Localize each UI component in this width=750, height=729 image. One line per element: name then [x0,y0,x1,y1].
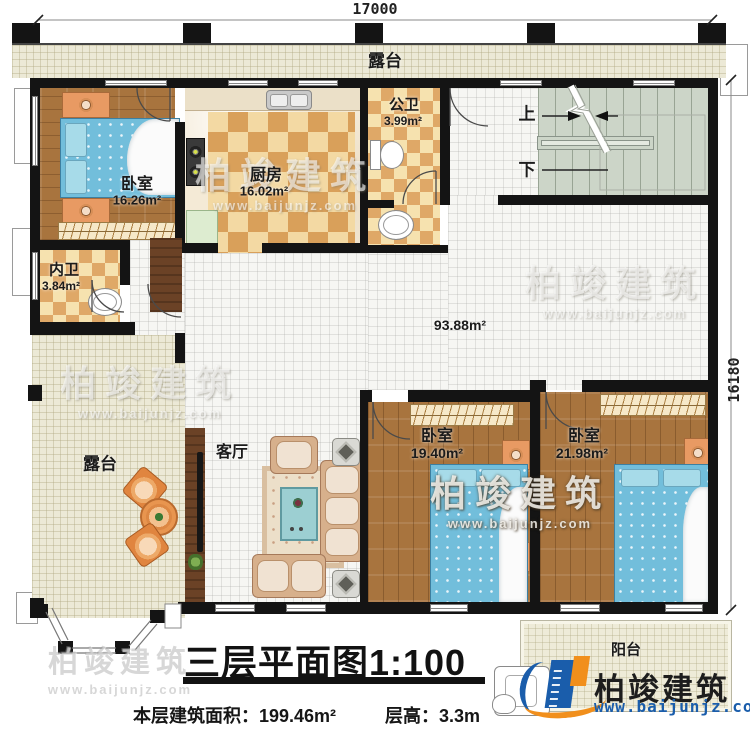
wall [582,380,712,392]
sofa-cushion [291,560,323,592]
column [28,385,42,401]
bed [430,464,528,604]
window [215,604,255,612]
hall-floor [448,195,708,390]
title-underline [183,677,485,684]
table-decor [299,527,303,531]
room-area-bedroom-right: 21.98m² [556,445,608,461]
window [560,604,600,612]
wash-basin [378,210,414,240]
wall [440,88,450,205]
window [228,80,268,86]
sofa-cushion [325,497,359,525]
room-label-inner-bath: 内卫 [49,259,79,280]
kitchen-sink [266,90,312,110]
balcony-chair [492,694,516,714]
room-label-bedroom-left: 卧室 [421,422,453,446]
sofa-cushion [325,528,359,556]
wall [360,245,448,253]
floor-area-text: 本层建筑面积：199.46m² [133,702,336,728]
bed-pillow [663,469,701,487]
right-dimension-label: 16180 [725,357,743,402]
brand-url: www.baijunjz.com [594,697,750,716]
room-area-bedroom-tl: 16.26m² [113,193,161,208]
wash-basin [88,288,122,316]
stove [186,138,205,186]
wall [30,598,44,612]
bed-pillow [437,469,477,487]
column [527,23,555,43]
wall [185,243,218,253]
watermark-text: 柏竣建筑 [48,648,192,678]
bed-blanket [499,487,527,603]
window [105,80,167,86]
room-label-kitchen: 厨房 [250,161,282,185]
bed-pillow [481,469,521,487]
column [355,23,383,43]
stair-handrail [537,136,654,150]
room-label-living: 客厅 [216,438,248,462]
armchair [270,436,318,474]
wall [30,240,130,250]
bed [614,464,710,604]
room-label-bedroom-tl: 卧室 [121,170,153,194]
side-table [332,438,360,466]
terrace-left-floor [32,335,185,618]
wall [360,390,368,612]
hall-area-label: 93.88m² [434,317,486,333]
wall [175,122,185,253]
nightstand [62,198,110,224]
exterior-ledge [12,228,32,296]
table-decor [290,527,294,531]
window [32,252,38,300]
room-label-terrace-left: 露台 [83,450,117,475]
window [665,604,703,612]
wall [175,333,185,363]
wall [360,88,368,253]
toilet-bowl [380,141,404,169]
side-table [332,570,360,598]
wall [708,78,718,612]
floor-height-text: 层高：3.3m [385,702,480,728]
wall [262,243,368,253]
room-label-terrace-top: 露台 [368,47,402,72]
window [286,604,326,612]
floor-plan-canvas: 柏竣建筑 www.baijunjz.com 柏竣建筑 www.baijunjz.… [0,0,750,729]
wall [530,380,540,612]
coffee-table [280,487,318,541]
sofa-cushion [276,441,312,469]
nightstand [62,92,110,118]
top-dimension-label: 17000 [352,0,397,18]
window [633,80,675,86]
sofa [320,460,364,562]
tv [197,452,203,552]
sofa [252,554,326,598]
stair-down-label: 下 [519,156,536,181]
bed-pillow [65,123,87,157]
sofa-cushion [257,560,289,592]
column [698,23,726,43]
window [430,604,468,612]
sofa-cushion [325,466,359,494]
room-label-bedroom-right: 卧室 [568,422,600,446]
window [298,80,338,86]
lamp-icon [335,573,356,594]
wall [368,200,394,208]
wood-door-panel [150,238,182,312]
plant [188,553,203,571]
window [500,80,542,86]
watermark-url: www.baijunjz.com [48,683,192,696]
lamp-icon [335,441,356,462]
watermark: 柏竣建筑 www.baijunjz.com [48,648,192,696]
wall [408,390,530,402]
room-label-public-bath: 公卫 [389,94,419,115]
bed-pillow [621,469,659,487]
room-area-public-bath: 3.99m² [384,114,422,128]
column [183,23,211,43]
column [12,23,40,43]
room-area-bedroom-left: 19.40m² [411,445,463,461]
room-label-balcony: 阳台 [611,639,641,660]
room-area-inner-bath: 3.84m² [42,279,80,293]
bed-blanket [683,487,709,603]
terrace-edge [12,43,726,45]
room-area-kitchen: 16.02m² [240,184,288,199]
wardrobe [600,394,706,416]
table-decor [292,497,304,509]
wall [120,240,130,285]
wall [30,322,135,335]
stair-up-label: 上 [519,100,536,125]
wall [498,195,718,205]
window [32,96,38,166]
bed-pillow [65,160,87,194]
